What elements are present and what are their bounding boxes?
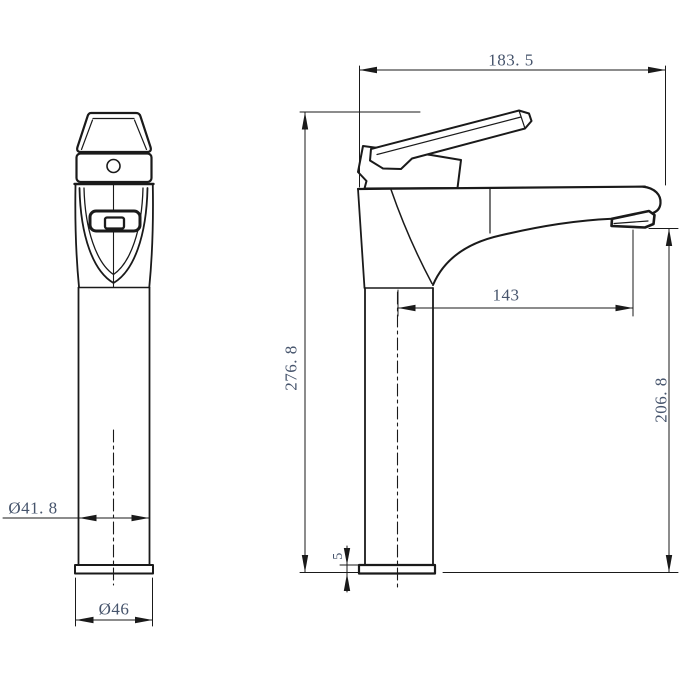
side-spout-tip — [643, 187, 661, 214]
dim-label-body-diameter: Ø41. 8 — [8, 500, 57, 517]
arrowhead — [666, 555, 672, 573]
arrowhead — [76, 617, 94, 623]
arrowhead — [648, 67, 666, 73]
side-spout-underside-curve — [433, 219, 612, 285]
arrowhead — [360, 67, 378, 73]
dim-label-base-diameter: Ø46 — [99, 601, 130, 618]
dim-label-overall-width: 183. 5 — [488, 52, 534, 69]
side-body-left-edge — [358, 189, 365, 288]
arrowhead — [79, 515, 97, 521]
arrowhead — [398, 305, 416, 311]
dim-label-overall-height: 276. 8 — [283, 345, 300, 391]
arrowhead — [616, 305, 634, 311]
side-body-front-curve — [391, 190, 432, 284]
side-view — [358, 111, 661, 589]
front-view — [75, 113, 154, 585]
arrowhead — [132, 515, 150, 521]
arrowhead — [666, 229, 672, 247]
side-view-dimensions — [300, 66, 678, 592]
front-indicator-button — [107, 160, 120, 173]
front-spout-notch — [105, 218, 124, 229]
arrowhead — [135, 617, 153, 623]
front-body-right-edge — [149, 185, 153, 287]
technical-drawing-canvas: 183. 5 276. 8 143 206. 8 5 Ø41. 8 Ø46 — [0, 0, 680, 680]
drawing-linework — [0, 0, 680, 680]
dim-label-spout-outlet-height: 206. 8 — [653, 377, 670, 423]
dim-label-base-thickness: 5 — [332, 552, 346, 560]
arrowhead — [302, 555, 308, 573]
front-handle-cap-inner — [82, 119, 147, 150]
side-spout-outlet — [612, 211, 655, 228]
arrowhead — [344, 574, 350, 592]
arrowhead — [302, 112, 308, 130]
front-body-left-edge — [75, 185, 79, 287]
dim-label-spout-reach: 143 — [493, 287, 520, 304]
front-handle-band — [77, 154, 152, 183]
